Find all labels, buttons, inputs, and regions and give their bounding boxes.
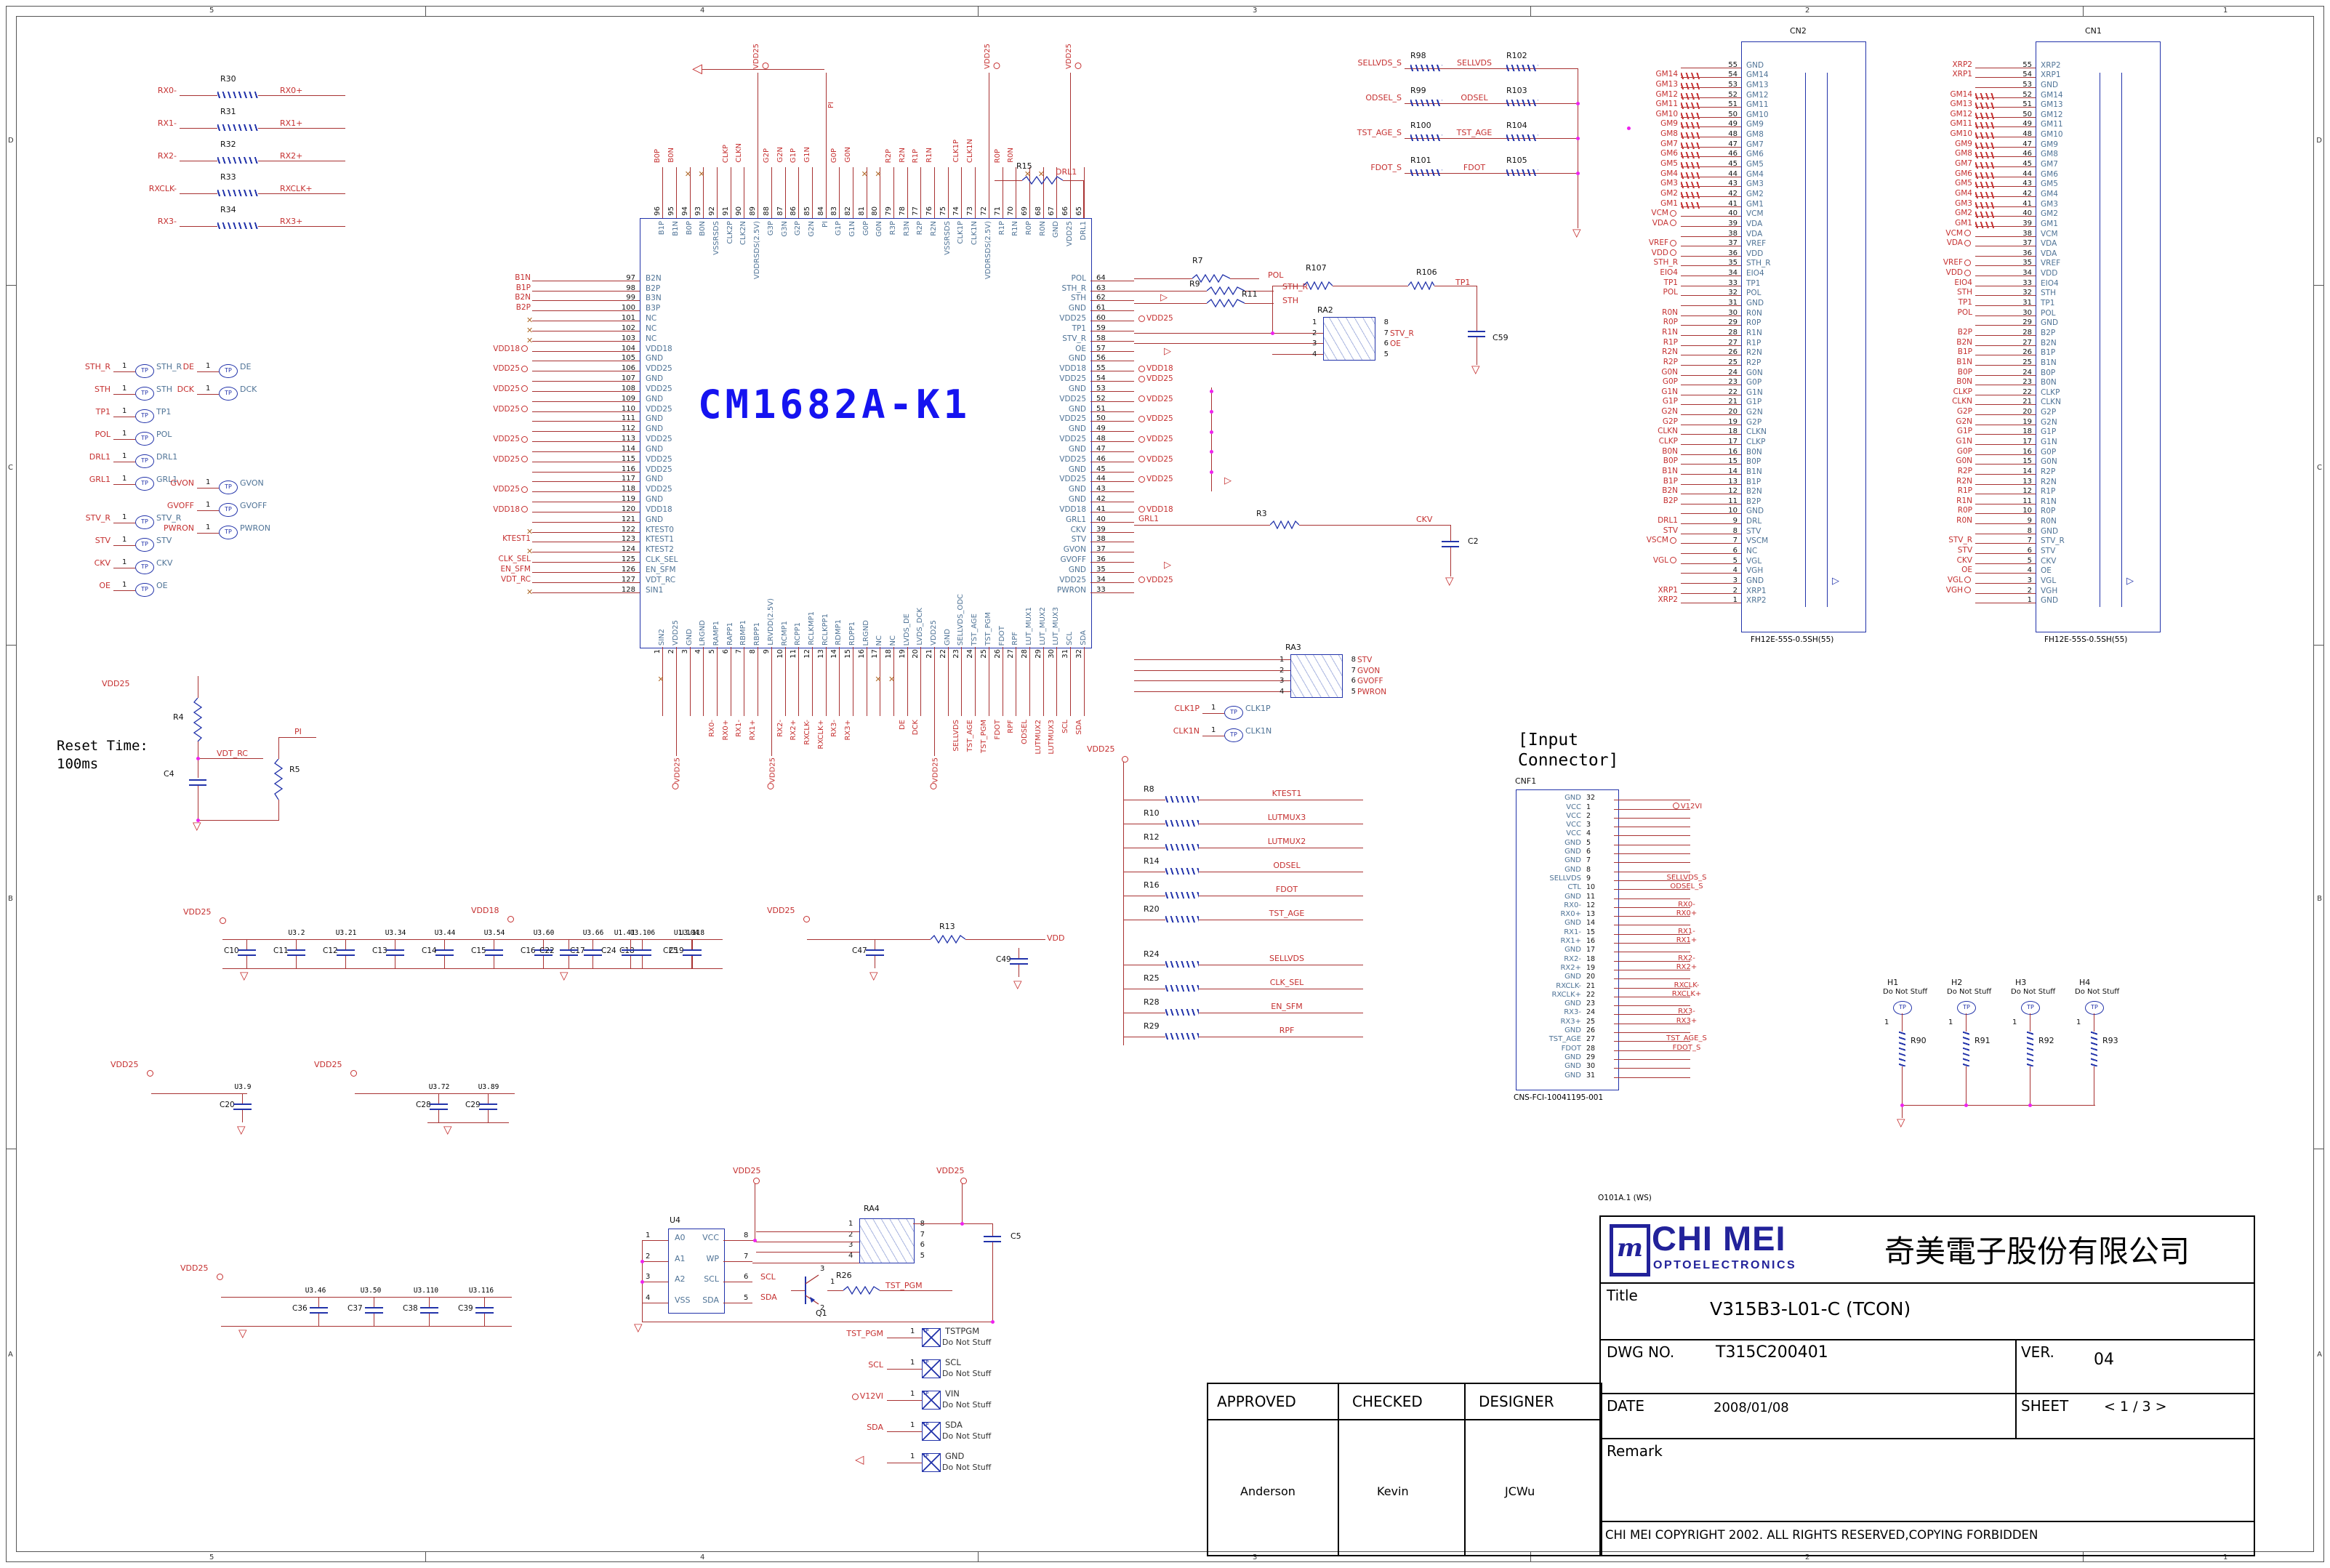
cn1-pins: XRP2 55 XRP2 XRP1 54 XRP1 53 GND GM14 52 <box>1857 60 2170 606</box>
resistor-array-ref: RA2 <box>1317 305 1333 315</box>
pin-number: 126 <box>608 566 635 574</box>
supply-ring-icon <box>1670 210 1676 217</box>
net-label: RXCLK- <box>1647 981 1727 989</box>
pin-number: 3 <box>1312 339 1317 347</box>
supply-label: VDD25 <box>752 44 773 69</box>
capacitor: U3.34 C13 <box>371 930 420 989</box>
net-label: B0N <box>1857 377 1972 386</box>
version: 04 <box>2094 1351 2114 1369</box>
gnd-icon: ▽ <box>443 1125 452 1134</box>
pin-name: R0N <box>1746 309 1762 318</box>
connector-pin: STV 6 STV <box>1857 546 2170 556</box>
pin-number: 101 <box>608 314 635 322</box>
pin-name: GND <box>1009 465 1086 474</box>
pin-name: RDMP1 <box>835 619 843 646</box>
chip-pin: 15 RX3+ <box>846 647 860 803</box>
connector-pin: 1 GND <box>1857 596 2170 606</box>
pin-number: 27 <box>1007 649 1016 659</box>
pin-number: 41 <box>2000 200 2032 208</box>
pin-number: 60 <box>1096 314 1106 322</box>
gnd-icon: ▽ <box>1471 365 1480 374</box>
net-label: VREF <box>1857 258 1972 267</box>
pin-name: R0P <box>1746 318 1761 327</box>
resistor-ref: R90 <box>1911 1036 1927 1045</box>
pin-name: GM3 <box>2041 200 2058 209</box>
pin-tag: U3.34 <box>372 929 419 937</box>
pin-number: 5 <box>744 1294 748 1302</box>
pin-name: GND <box>1523 856 1581 864</box>
ic-ref: U4 <box>670 1215 680 1225</box>
connector-pin: GM2 42 GM2 <box>1563 189 1876 199</box>
pin-number: 30 <box>2000 309 2032 317</box>
tp-circle-icon: TP <box>1957 1001 1976 1015</box>
pin-number: 29 <box>2000 318 2032 326</box>
net-label: CLK_SEL <box>462 555 531 563</box>
pin-name: B1P <box>658 221 667 235</box>
pin-number: 35 <box>1096 566 1106 574</box>
pin-number: 13 <box>1706 478 1738 486</box>
connector-pin: VREF 37 VREF <box>1563 239 1876 249</box>
capacitor-ref: C14 <box>422 946 437 955</box>
pin-tag: U3.21 <box>323 929 369 937</box>
resistor-ref: R16 <box>1144 880 1160 890</box>
pin-name: G2P <box>1746 418 1761 427</box>
pin-name: GM12 <box>1746 91 1769 100</box>
connector-pin: RXCLK+ 22 RXCLK+ <box>1396 991 1861 1000</box>
pin-number: 103 <box>608 334 635 342</box>
no-connect-icon: ✕ <box>698 169 704 179</box>
pin-number: 33 <box>1096 586 1106 594</box>
net-label: GM1 <box>1563 199 1678 208</box>
pin-number: 105 <box>608 354 635 362</box>
pin-number: 16 <box>2000 448 2032 456</box>
pin-name: R3N <box>903 221 912 236</box>
net-label: SDA <box>811 1423 883 1432</box>
pin-number: 1 <box>1706 596 1738 604</box>
series-resistor-icon <box>1681 102 1700 109</box>
net-label: VGH <box>1857 586 1972 595</box>
capacitor-ref: C15 <box>471 946 486 955</box>
checked-label: CHECKED <box>1352 1393 1423 1410</box>
pin-number: 25 <box>1586 1018 1608 1026</box>
chip-pin: 121 GND <box>422 515 734 525</box>
pin-number: 21 <box>1706 398 1738 406</box>
chip-pin: G1N 85 <box>806 67 819 218</box>
pin-number: 29 <box>1035 649 1043 659</box>
net-label: GM4 <box>1563 169 1678 178</box>
pin-name: B1P <box>2041 348 2055 357</box>
pin-name: R2N <box>930 221 939 236</box>
buffer-icon: ▷ <box>1164 346 1171 357</box>
connector-pin: R0P 29 R0P <box>1563 318 1876 329</box>
net-label: RX3- <box>830 720 839 737</box>
pin-name: VDA <box>1746 220 1762 228</box>
pin-number: 11 <box>2000 497 2032 505</box>
tp-circle-icon: TP <box>135 409 154 423</box>
pin-name: B0N <box>699 221 707 236</box>
net-label: R0P <box>1563 318 1678 326</box>
test-point-row: CKV 1 TP CKV <box>60 554 205 576</box>
pin-number: 47 <box>1706 140 1738 148</box>
supply-ring-icon <box>521 506 528 512</box>
pin-number: 50 <box>1706 110 1738 118</box>
chip-pin: KTEST1 123 KTEST1 <box>422 535 734 545</box>
pin-number: 33 <box>1706 279 1738 287</box>
connector-pin: RX2+ 19 RX2+ <box>1396 964 1861 973</box>
connector-pin: B2N 12 B2N <box>1563 487 1876 497</box>
pin-number: 10 <box>1706 507 1738 515</box>
pin-number: 127 <box>608 576 635 584</box>
resistor-ref: R20 <box>1144 904 1160 914</box>
chip-pin: ✕ 102 NC <box>422 323 734 334</box>
pin-name: GND <box>1009 495 1086 504</box>
net-label: RXCLK+ <box>280 184 313 193</box>
tp-circle-icon: TP <box>2085 1001 2104 1015</box>
chip-pin: VDD25 115 VDD25 <box>422 454 734 465</box>
connector-pin: VDD 34 VDD <box>1857 268 2170 278</box>
series-resistor-icon <box>1681 132 1700 139</box>
version-label: VER. <box>2021 1343 2054 1361</box>
remark-label: Remark <box>1607 1442 1663 1460</box>
pin-name: B1N <box>2041 358 2057 367</box>
connector-pin: G0P 23 G0P <box>1563 378 1876 388</box>
pin-number: 26 <box>2000 348 2032 356</box>
net-label: EN_SFM <box>462 565 531 574</box>
do-not-stuff-note: Do Not Stuff <box>942 1431 991 1441</box>
pin-name: GM14 <box>2041 91 2063 100</box>
pin-number: 115 <box>608 455 635 463</box>
pin-name: G1P <box>1746 398 1761 406</box>
pin-name: GND <box>1746 299 1764 307</box>
pin-name: R3P <box>889 221 898 235</box>
pin-name: G0N <box>1746 369 1763 377</box>
resistor-icon <box>1506 65 1538 71</box>
chip-top-pin-names: B1PB1NB0PB0NVSSRSDSCLK2PCLK2NVDDRSDS(2.5… <box>656 221 1090 313</box>
pin-name: GND <box>1009 485 1086 494</box>
chip-pin: 105 GND <box>422 354 734 364</box>
chip-pin: OE 57 <box>1090 344 1498 354</box>
pin-number: 8 <box>1384 318 1389 326</box>
supply-label: VDD18 <box>1137 505 1173 514</box>
resistor-icon <box>217 92 258 98</box>
net-label: EIO4 <box>1563 268 1678 277</box>
net-label: RX0+ <box>722 720 731 741</box>
pin-number: 8 <box>1706 527 1738 535</box>
pin-name: VDD18 <box>1009 364 1086 373</box>
pin-number: 100 <box>608 304 635 312</box>
connector-pin: 31 GND <box>1563 298 1876 308</box>
pin-number: 8 <box>1351 656 1356 664</box>
test-point-row: CLK1N 1 TP CLK1N <box>1149 722 1294 744</box>
pin-name: CLK1N <box>971 221 979 245</box>
net-label: GM5 <box>1563 159 1678 168</box>
pin-name: RAMP1 <box>712 621 721 646</box>
net-label: DCK <box>912 720 920 735</box>
pin-number: 25 <box>980 649 989 659</box>
pin-number: 53 <box>1096 385 1106 393</box>
pin-name: R1N <box>2041 497 2057 506</box>
supply-label: VDD25 <box>671 757 683 789</box>
pin-number: 28 <box>1021 649 1029 659</box>
pin-number: 26 <box>1586 1026 1608 1034</box>
pin-name: GM10 <box>1746 110 1769 119</box>
net-label: LUTMUX3 <box>1048 720 1056 755</box>
pin-name: G1N <box>1746 388 1763 397</box>
pin-name: RAPP1 <box>726 622 735 646</box>
supply-ring-icon <box>960 1178 967 1184</box>
resistor-ref: R106 <box>1416 268 1437 277</box>
ra3-pins: 1 8 STV 2 7 GVON 3 6 GVOFF 4 5 PWRON <box>1290 656 1344 698</box>
pin-number: 34 <box>1706 269 1738 277</box>
pin-name: VCM <box>1746 209 1764 218</box>
resistor-icon <box>1165 868 1199 875</box>
chip-bottom-pin-names: SIN2VDD25GNDLRGNDRAMP1RAPP1RBMP1RBPP1LRV… <box>656 554 1090 646</box>
net-label: GM4 <box>1857 189 1972 198</box>
chip-pin: GND 43 <box>1090 484 1498 494</box>
pin-number: 48 <box>2000 130 2032 138</box>
pin-name: G3N <box>781 221 790 237</box>
chip-pin: VDD25 108 VDD25 <box>422 384 734 394</box>
ra4-pins: 1 8 2 7 3 6 4 5 <box>859 1220 913 1262</box>
pin-name: GM1 <box>1746 200 1764 209</box>
pin-number: 29 <box>1706 318 1738 326</box>
pin-number: 5 <box>2000 557 2032 565</box>
resistor-ref: R8 <box>1144 784 1154 794</box>
connector-pin: 8 GND <box>1857 526 2170 536</box>
pin-name: GND <box>646 425 663 433</box>
resistor-icon <box>217 157 258 164</box>
net-label: G0P <box>830 148 839 163</box>
pin-number: 8 <box>2000 527 2032 535</box>
test-point-row: DRL1 1 TP DRL1 <box>60 448 205 470</box>
pin-name: R2N <box>2041 478 2057 486</box>
mounting-holes: H1 Do Not Stuff TP 1 R90 H2 Do Not Stuff… <box>1881 978 2137 1109</box>
net-label: G2P <box>1563 417 1678 426</box>
resistor-icon <box>1165 844 1199 851</box>
chip-pin: GND 49 <box>1090 424 1498 434</box>
resistor-icon <box>1165 985 1199 992</box>
net-label: RX0+ <box>1647 909 1727 917</box>
pin-number: 12 <box>2000 487 2032 495</box>
pin-number: 13 <box>1586 910 1608 918</box>
resistor-icon <box>1410 100 1442 106</box>
connector-pin: OE 4 OE <box>1857 566 2170 576</box>
series-resistor-icon <box>1681 113 1700 119</box>
net-label: RX1+ <box>1647 936 1727 944</box>
pin-name: SIN2 <box>658 629 667 646</box>
pin-name: VDD25 <box>1009 414 1086 423</box>
pin-name: GND <box>1523 839 1581 847</box>
pin-number: 21 <box>2000 398 2032 406</box>
supply-label: VDD18 <box>1137 364 1173 373</box>
net-label: RXCLK- <box>803 720 812 745</box>
pin-number: 5 <box>708 649 717 654</box>
chip-pin: G0N 82 <box>846 67 860 218</box>
resistor-ref: R32 <box>220 140 236 149</box>
pin-number: 24 <box>1586 1008 1608 1016</box>
supply-label: VDD25 <box>111 1060 138 1069</box>
connector-pin: 6 NC <box>1563 546 1876 556</box>
pin-number: 110 <box>608 405 635 413</box>
designer-by: JCWu <box>1505 1484 1535 1498</box>
pin-name: LUT_MUX2 <box>1039 607 1048 646</box>
net-label: ODSEL <box>1021 720 1029 744</box>
pullup-row: R25 CLK_SEL <box>1123 973 1429 997</box>
pin-number: 50 <box>2000 110 2032 118</box>
net-label: VDA <box>1563 219 1678 228</box>
net-label: LUTMUX3 <box>1218 813 1356 822</box>
pin-name: G2N <box>1746 408 1763 417</box>
pin-number: 75 <box>939 206 948 216</box>
pin-number: 6 <box>1706 547 1738 555</box>
chip-pin: 21 VDD25 <box>928 647 941 803</box>
pin-name: A2 <box>675 1274 686 1284</box>
pin-number: 45 <box>1096 465 1106 473</box>
pin-number: 52 <box>1096 395 1106 403</box>
pin-number: 80 <box>871 206 880 216</box>
net-label: R1N <box>1563 328 1678 337</box>
pin-name: STV <box>1746 527 1761 536</box>
do-not-stuff-note: Do Not Stuff <box>942 1338 991 1347</box>
resistor-ref: R91 <box>1975 1036 1990 1045</box>
pin-number: 122 <box>608 526 635 534</box>
pullup-row: R24 SELLVDS <box>1123 949 1429 973</box>
offpage-arrow-icon: ◁ <box>692 61 702 76</box>
pin-name: VDD18 <box>646 505 672 514</box>
net-label: PWRON <box>1357 688 1386 696</box>
pin-number: 20 <box>1706 408 1738 416</box>
pin-number: 43 <box>2000 180 2032 188</box>
net-label: SELLVDS <box>952 720 961 752</box>
resistor-array-ref: RA4 <box>864 1204 880 1213</box>
connector-pin: G0N 24 G0N <box>1563 368 1876 378</box>
net-label: OE <box>1857 566 1972 574</box>
net-label: R1P <box>912 149 920 163</box>
do-not-stuff-note: Do Not Stuff <box>942 1369 991 1378</box>
pin-number: 121 <box>608 515 635 523</box>
net-label: GM6 <box>1857 169 1972 178</box>
pin-number: 65 <box>1075 206 1084 216</box>
chip-pin: GND 42 <box>1090 494 1498 504</box>
net-label: GM7 <box>1857 159 1972 168</box>
supply-label: VDD18 <box>422 345 529 353</box>
connector-pin: RX0+ 13 RX0+ <box>1396 910 1861 919</box>
connector-pin: G2N 19 G2N <box>1857 417 2170 427</box>
pin-number: 120 <box>608 505 635 513</box>
net-label: GM14 <box>1563 70 1678 79</box>
resistor-icon <box>217 190 258 196</box>
series-resistor-icon <box>1975 192 1994 198</box>
supply-ring-icon <box>1964 240 1971 246</box>
chip-pin: STV 38 <box>1090 535 1498 545</box>
pin-number: 18 <box>885 649 893 659</box>
pin-number: 1 <box>1586 803 1608 811</box>
pin-name: G1N <box>2041 438 2057 446</box>
net-label: G0N <box>1857 457 1972 465</box>
pin-number: 51 <box>1706 100 1738 108</box>
pin-name: XRP1 <box>2041 71 2061 79</box>
chip-pin: G2P 88 <box>765 67 779 218</box>
pin-name: GM9 <box>1746 120 1764 129</box>
net-label: ODSEL_S <box>1647 882 1727 890</box>
net-label: DRL1 <box>1056 167 1077 177</box>
net-label: LUTMUX2 <box>1035 720 1043 755</box>
connector-pin: B1N 14 B1N <box>1563 467 1876 477</box>
connector-pin: 10 GND <box>1563 507 1876 517</box>
pin-number: 5 <box>1706 557 1738 565</box>
pin-number: 54 <box>1706 71 1738 79</box>
net-label: RXCLK+ <box>817 720 826 749</box>
chip-pin: VDD25 113 VDD25 <box>422 434 734 444</box>
pin-name: CLK2N <box>739 221 748 245</box>
pin-name: LUT_MUX3 <box>1052 607 1061 646</box>
supply-ring-icon <box>1138 436 1145 443</box>
chip-pin: R1P 77 <box>914 67 928 218</box>
pin-number: 50 <box>1096 414 1106 422</box>
pin-number: 11 <box>1586 893 1608 901</box>
connector-pin: DRL1 9 DRL <box>1563 516 1876 526</box>
pin-name: RX1- <box>1523 928 1581 936</box>
pin-number: 3 <box>1706 576 1738 584</box>
tp-nostuff-icon: TP <box>922 1422 941 1441</box>
pin-name: GND <box>1523 919 1581 927</box>
connector-pin: R0P 10 R0P <box>1857 507 2170 517</box>
pin-number: 6 <box>2000 547 2032 555</box>
pin-number: 14 <box>1706 467 1738 475</box>
pin-number: 56 <box>1096 354 1106 362</box>
test-point-row: CLK1P 1 TP CLK1P <box>1149 699 1294 722</box>
chip-pin: 119 GND <box>422 494 734 504</box>
pin-number: 5 <box>1586 839 1608 847</box>
net-label: CLK1N <box>966 139 975 163</box>
pin-name: VDD25 <box>1009 475 1086 483</box>
net-label: G0P <box>1857 447 1972 456</box>
connector-pin: R1P 12 R1P <box>1857 487 2170 497</box>
net-label: POL <box>1563 288 1678 297</box>
pin-number: 84 <box>817 206 826 216</box>
net-label: GM3 <box>1563 179 1678 188</box>
pin-name: G0N <box>875 221 884 237</box>
supply-label: VDD25 <box>984 44 1004 69</box>
net-label: RXCLK- <box>113 184 177 193</box>
pin-name: NC <box>646 314 656 323</box>
pin-number: 72 <box>980 206 989 216</box>
capacitor: U3.89 C29 <box>464 1085 513 1143</box>
termination-resistor-row: RX2- R32 RX2+ <box>113 138 403 171</box>
pin-number: 37 <box>1706 239 1738 247</box>
pin-name: LVDS_DE <box>903 614 912 646</box>
pi-net-label: PI <box>827 102 836 108</box>
capacitor-ref: C10 <box>224 946 239 955</box>
pin-name: STH <box>2041 289 2056 297</box>
pin-name: GND <box>2041 318 2058 327</box>
net-label: FDOT <box>1445 163 1503 172</box>
connector-pin: GM5 45 GM5 <box>1563 159 1876 169</box>
pin-number: 30 <box>1706 309 1738 317</box>
transistor-icon <box>806 1271 827 1308</box>
connector-pin: 29 GND <box>1857 318 2170 329</box>
hole-ref: H3 <box>2015 978 2026 987</box>
pullup-group-1: R8 KTEST1 R10 LUTMUX3 R12 LUTMUX2 R14 OD… <box>1123 784 1429 928</box>
pin-number: 19 <box>1586 964 1608 972</box>
pin-name: GM4 <box>1746 170 1764 179</box>
pin-number: 3 <box>1586 821 1608 829</box>
pin-name: STV_R <box>2041 536 2065 545</box>
resistor-icon <box>1899 1032 1905 1066</box>
chip-pin: GND 56 <box>1090 354 1498 364</box>
pin-number: 51 <box>1096 405 1106 413</box>
capacitor: U1.104 C25 <box>662 930 723 989</box>
